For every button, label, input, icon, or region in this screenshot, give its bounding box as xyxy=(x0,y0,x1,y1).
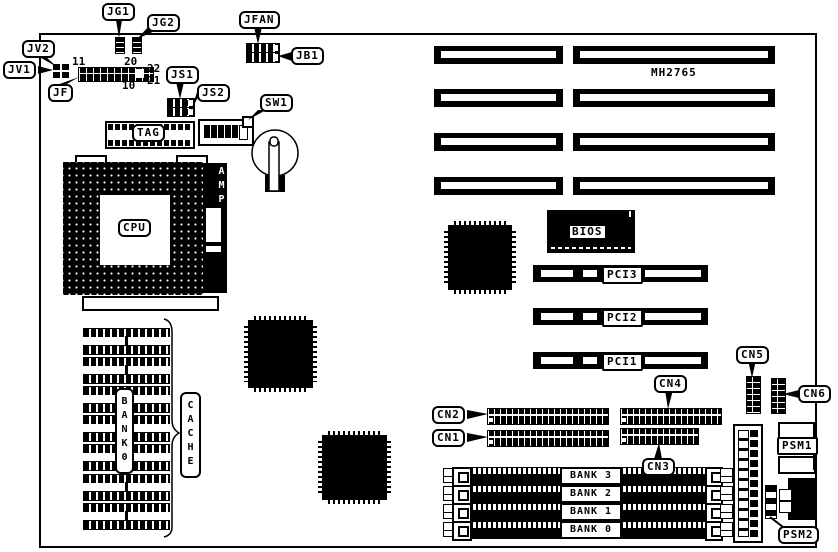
motherboard-diagram: MH2765 11 20 10 22 21 AMP xyxy=(0,0,838,552)
sram-chip xyxy=(83,503,170,530)
amp-slot-small xyxy=(206,246,221,252)
isa-slot-2-long xyxy=(573,89,775,107)
jb1-label: JB1 xyxy=(291,47,324,65)
jv2-label: JV2 xyxy=(22,40,55,58)
jf-pin-11: 11 xyxy=(72,56,85,67)
simm-end xyxy=(720,504,733,519)
jv1-label: JV1 xyxy=(3,61,36,79)
psm2-label: PSM2 xyxy=(778,526,819,544)
jf-label: JF xyxy=(48,84,73,102)
isa-slot-inner xyxy=(441,182,556,189)
cn2-label: CN2 xyxy=(432,406,465,424)
simm-bank0-label: BANK 0 xyxy=(560,521,622,539)
jf-header-gap xyxy=(135,69,144,78)
cache-bank0-label: BANK0 xyxy=(115,388,134,474)
js2-connector xyxy=(167,107,195,117)
psm2-din-connector xyxy=(788,478,817,520)
simm-latch xyxy=(452,521,472,541)
isa-slot-inner xyxy=(441,51,556,58)
isa-slot-inner xyxy=(580,138,768,145)
psm2-pin-pad xyxy=(779,489,792,501)
isa-slot-inner xyxy=(580,51,768,58)
isa-slot-2-short xyxy=(434,89,563,107)
isa-slot-4-short xyxy=(434,177,563,195)
cn5-connector xyxy=(746,376,761,414)
psm2-pin-pad xyxy=(779,501,792,513)
sw1-pointer-pad xyxy=(242,116,254,128)
cn6-label: CN6 xyxy=(798,385,831,403)
simm-end xyxy=(720,522,733,537)
power-connector xyxy=(733,424,763,543)
amp-label: AMP xyxy=(203,166,227,208)
isa-slot-3-long xyxy=(573,133,775,151)
jg2-label: JG2 xyxy=(147,14,180,32)
isa-slot-1-long xyxy=(573,46,775,64)
cn3-header xyxy=(620,428,699,445)
isa-slot-inner xyxy=(441,94,556,101)
jv1-jumper xyxy=(53,64,60,78)
jg1-label: JG1 xyxy=(102,3,135,21)
jg1-connector xyxy=(115,37,125,54)
isa-slot-3-short xyxy=(434,133,563,151)
board-model-text: MH2765 xyxy=(651,67,697,78)
jb1-connector xyxy=(246,52,280,63)
isa-slot-4-long xyxy=(573,177,775,195)
jf-pin-22: 22 xyxy=(147,63,160,74)
simm-end xyxy=(720,468,733,483)
sram-chip xyxy=(83,357,170,384)
simm-end xyxy=(720,486,733,501)
simm-latch xyxy=(452,485,472,505)
psm1-port-lower xyxy=(778,456,816,474)
jf-pin-10: 10 xyxy=(122,80,135,91)
chipset-qfp xyxy=(322,435,387,500)
sw1-label: SW1 xyxy=(260,94,293,112)
chipset-qfp xyxy=(448,225,512,290)
pci1-label: PCI1 xyxy=(602,353,643,371)
cn4-label: CN4 xyxy=(654,375,687,393)
cn1-label: CN1 xyxy=(432,429,465,447)
jf-pin-20: 20 xyxy=(124,56,137,67)
cn3-label: CN3 xyxy=(642,458,675,476)
cn4-header xyxy=(620,408,722,425)
jf-header xyxy=(78,67,154,82)
cn1-header xyxy=(487,430,609,447)
simm-latch xyxy=(452,467,472,487)
jv2-jumper xyxy=(62,64,69,78)
simm-bank1-label: BANK 1 xyxy=(560,503,622,521)
isa-slot-inner xyxy=(580,182,768,189)
jf-pin-21: 21 xyxy=(147,75,160,86)
amp-regulator-module: AMP xyxy=(203,163,227,293)
cache-label: CACHE xyxy=(180,392,201,478)
jfan-label: JFAN xyxy=(239,11,280,29)
cn5-label: CN5 xyxy=(736,346,769,364)
amp-slot xyxy=(206,208,221,242)
bios-label: BIOS xyxy=(570,226,605,238)
sram-chip xyxy=(83,328,170,355)
pci3-label: PCI3 xyxy=(602,266,643,284)
cpu-label: CPU xyxy=(118,219,151,237)
cn6-connector xyxy=(771,378,786,414)
tag-label: TAG xyxy=(132,124,165,142)
simm-bank3-label: BANK 3 xyxy=(560,467,622,485)
cpu-zif-lever xyxy=(82,296,219,311)
sram-chip xyxy=(83,474,170,501)
cn2-header xyxy=(487,408,609,425)
psm1-label: PSM1 xyxy=(777,437,818,455)
simm-bank2-label: BANK 2 xyxy=(560,485,622,503)
isa-slot-1-short xyxy=(434,46,563,64)
js1-label: JS1 xyxy=(166,66,199,84)
simm-latch xyxy=(452,503,472,523)
isa-slot-inner xyxy=(580,94,768,101)
isa-slot-inner xyxy=(441,138,556,145)
pci2-label: PCI2 xyxy=(602,309,643,327)
jg2-connector xyxy=(132,37,142,54)
chipset-qfp xyxy=(248,320,313,388)
js2-label: JS2 xyxy=(197,84,230,102)
psm2-pin-strip xyxy=(765,485,777,519)
